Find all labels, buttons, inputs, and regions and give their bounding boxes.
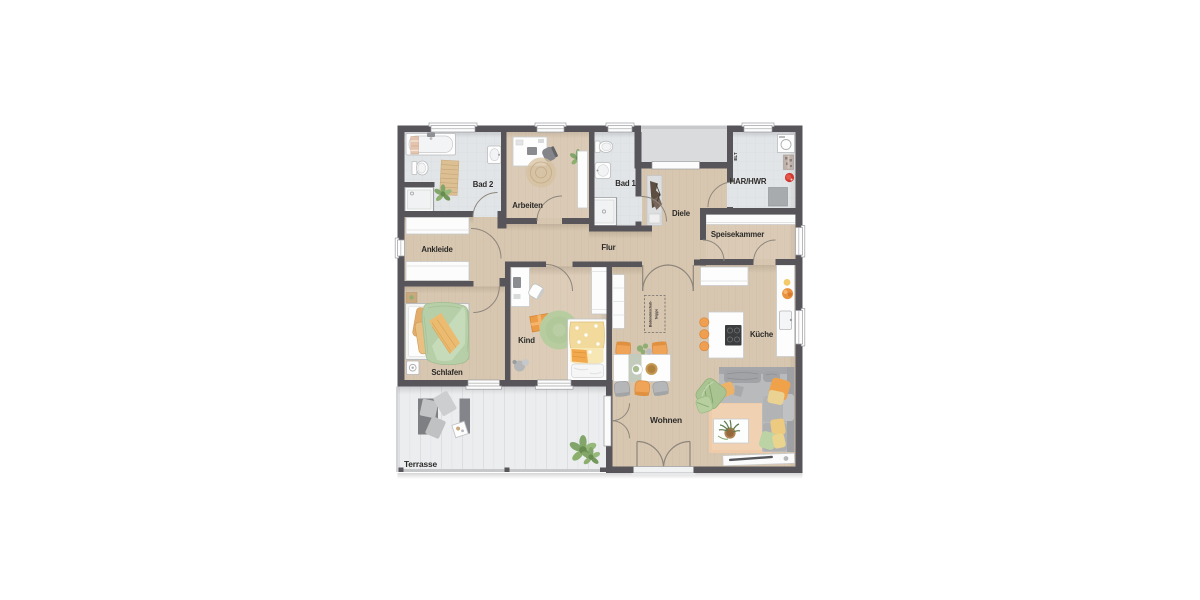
svg-text:HAR/HWR: HAR/HWR	[730, 177, 767, 186]
svg-text:Wohnen: Wohnen	[650, 415, 682, 425]
svg-text:Kind: Kind	[518, 336, 535, 345]
svg-text:ELT: ELT	[733, 152, 738, 161]
svg-text:Terrasse: Terrasse	[404, 459, 438, 469]
svg-text:Schlafen: Schlafen	[431, 368, 463, 377]
svg-text:Ankleide: Ankleide	[421, 245, 453, 254]
svg-text:Diele: Diele	[672, 209, 691, 218]
svg-text:Bad 2: Bad 2	[473, 180, 494, 189]
svg-text:treppe: treppe	[655, 309, 659, 319]
svg-text:Bodeneinschub-: Bodeneinschub-	[649, 301, 653, 328]
svg-text:Bad 1: Bad 1	[615, 179, 636, 188]
svg-text:Arbeiten: Arbeiten	[512, 201, 543, 210]
svg-text:Speisekammer: Speisekammer	[711, 230, 764, 239]
svg-text:Flur: Flur	[601, 243, 615, 252]
svg-text:Küche: Küche	[750, 330, 774, 339]
